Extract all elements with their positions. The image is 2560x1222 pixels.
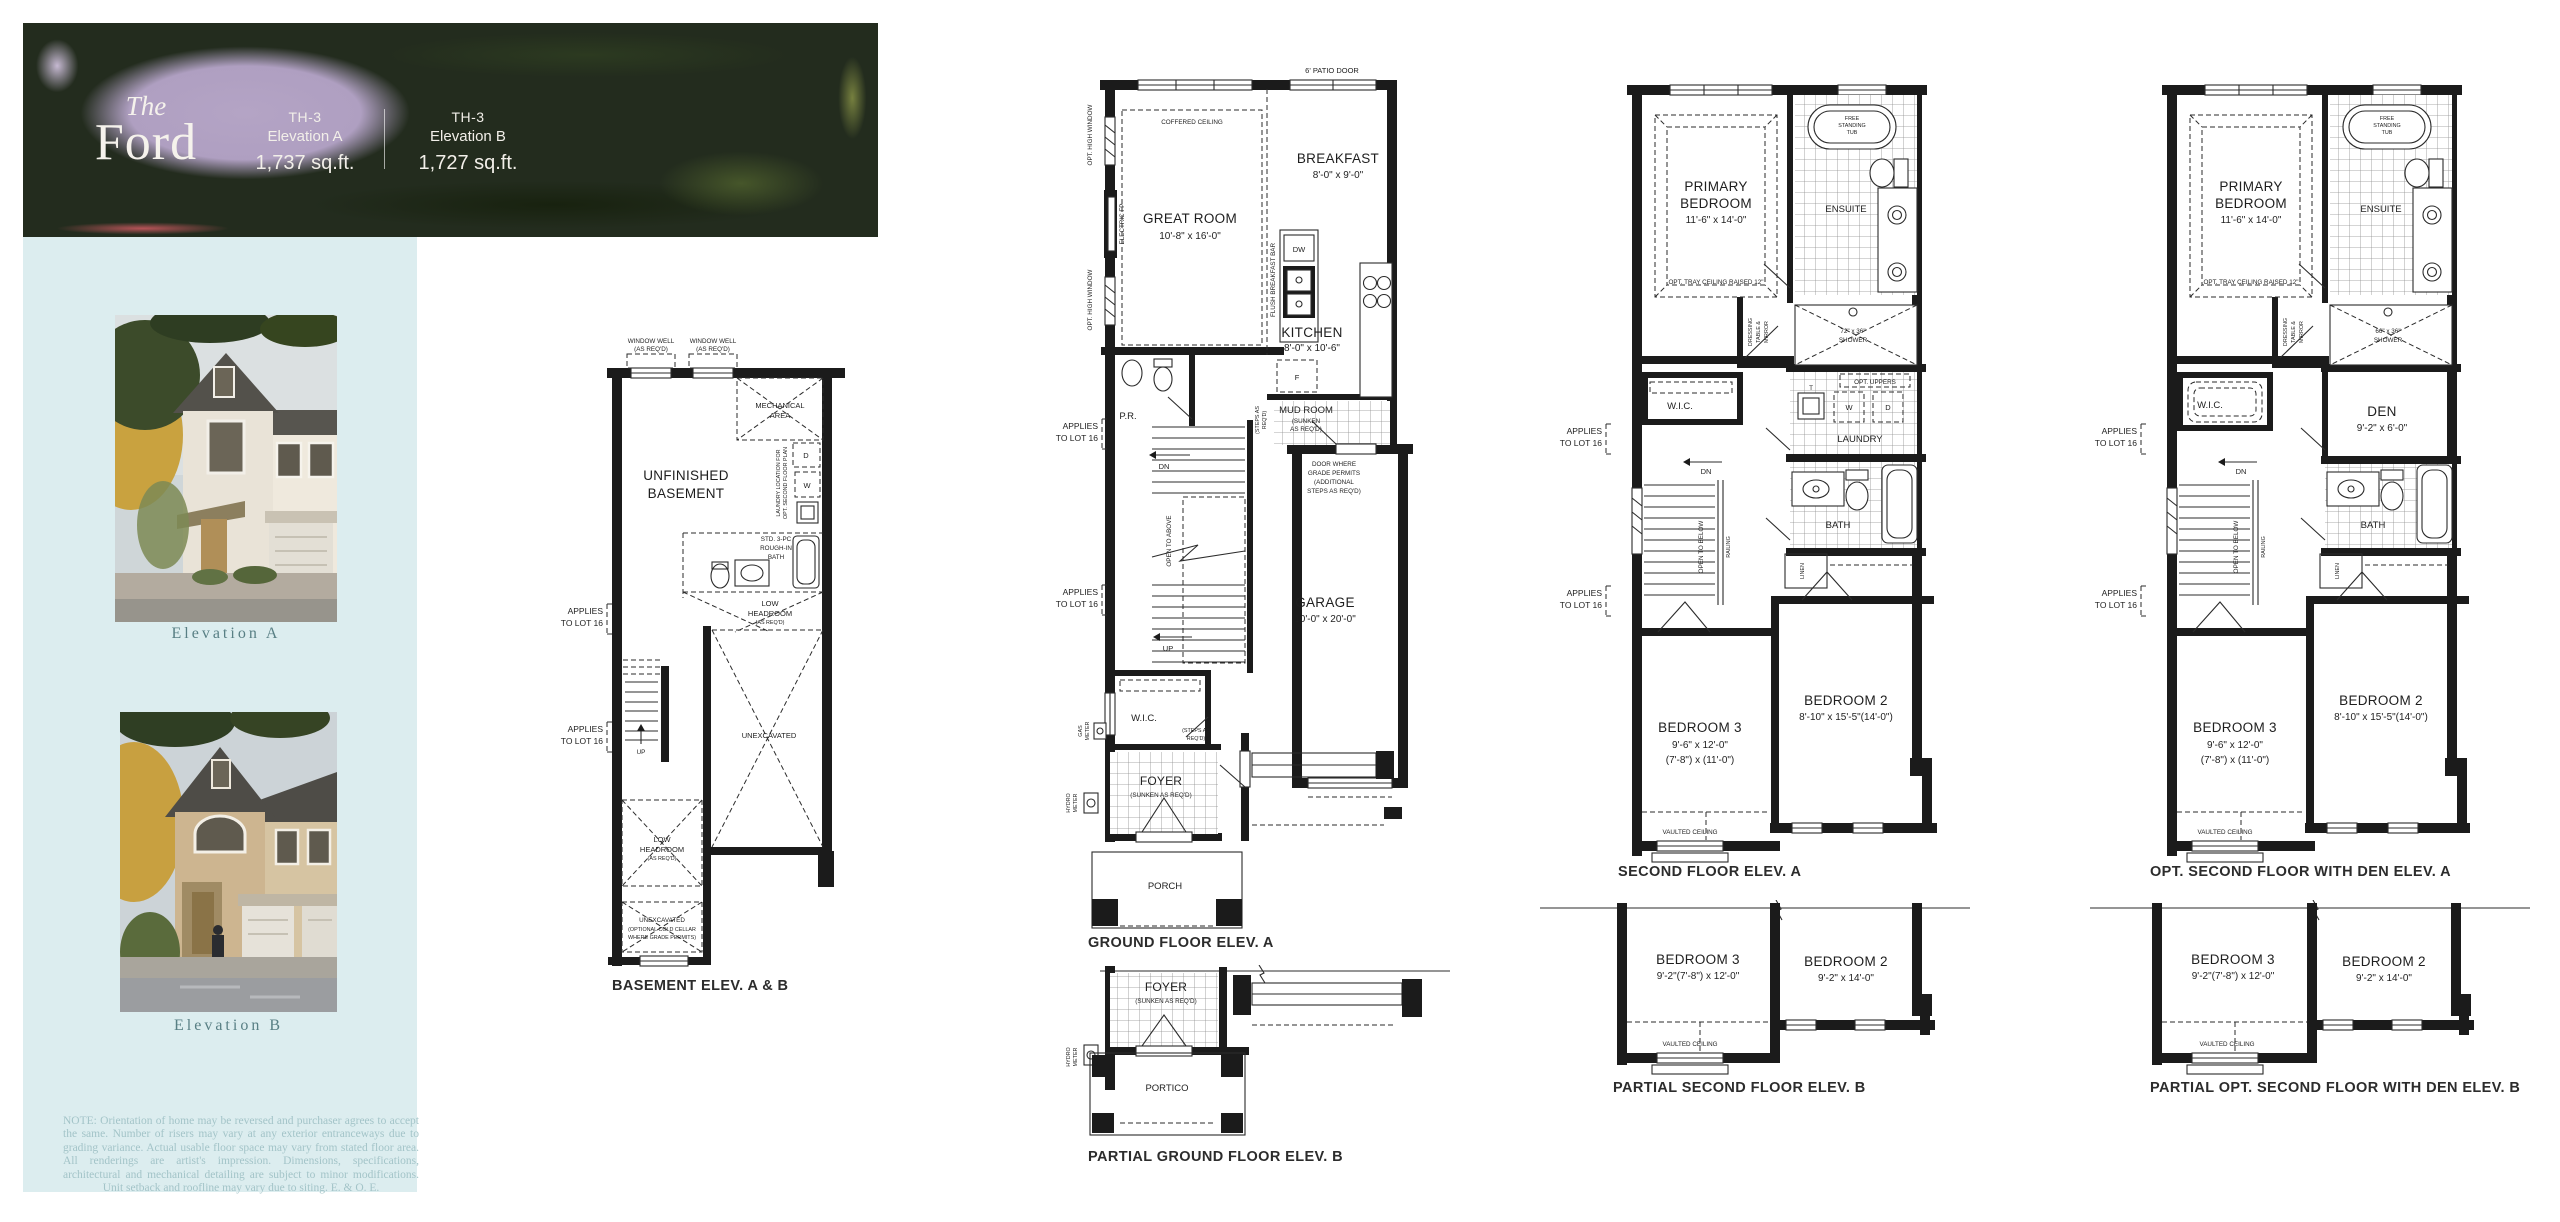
applies-lot16-ground-2: APPLIES TO LOT 16 [1056, 585, 1110, 615]
breakfast-label: BREAKFAST [1297, 151, 1379, 166]
svg-text:11'-6" x 14'-0": 11'-6" x 14'-0" [2221, 215, 2282, 226]
svg-text:APPLIES: APPLIES [1063, 421, 1099, 431]
svg-text:APPLIES: APPLIES [1567, 588, 1603, 598]
svg-text:APPLIES: APPLIES [568, 724, 604, 734]
basement-walls [612, 373, 840, 961]
gas-meter: GAS METER [1078, 721, 1106, 740]
svg-text:GRADE PERMITS: GRADE PERMITS [1308, 470, 1360, 477]
svg-text:VAULTED CEILING: VAULTED CEILING [2197, 829, 2252, 836]
foyer-steps-note-2: REQ'D) [1187, 736, 1206, 742]
bedroom2: BEDROOM 2 8'-10" x 15'-5"(14'-0") [1799, 693, 1893, 723]
model-a: TH-3 [225, 109, 385, 125]
svg-text:RAILING: RAILING [1726, 536, 1732, 558]
svg-text:8'-10" x 15'-5"(14'-0"): 8'-10" x 15'-5"(14'-0") [2334, 712, 2428, 723]
svg-text:(7'-8") x (11'-0"): (7'-8") x (11'-0") [1666, 755, 1735, 766]
applies-lot16-second-2: APPLIES TO LOT 16 [1560, 586, 1614, 616]
svg-text:STD. 3-PC: STD. 3-PC [761, 536, 792, 543]
second-floor-plan: PRIMARY BEDROOM 11'-6" x 14'-0" OPT. TRA… [1540, 60, 1970, 890]
svg-text:VAULTED CEILING: VAULTED CEILING [1662, 829, 1717, 836]
svg-text:UNEXCAVATED: UNEXCAVATED [639, 917, 685, 924]
applies-lot16-second-1: APPLIES TO LOT 16 [1560, 424, 1614, 454]
svg-text:APPLIES: APPLIES [568, 606, 604, 616]
opt-second-caption: OPT. SECOND FLOOR WITH DEN ELEV. A [2150, 864, 2451, 880]
svg-text:9'-6" x 12'-0": 9'-6" x 12'-0" [1672, 740, 1728, 751]
pb3-label: BEDROOM 3 [1656, 952, 1740, 967]
shower: 72" x 36" SHOWER [1795, 305, 1917, 365]
svg-text:TO LOT 16: TO LOT 16 [2095, 600, 2137, 610]
porch: PORCH [1092, 852, 1242, 928]
svg-text:UNEXCAVATED: UNEXCAVATED [742, 731, 797, 740]
svg-text:FOYER: FOYER [1145, 980, 1187, 994]
svg-text:(7'-8") x (11'-0"): (7'-8") x (11'-0") [2201, 755, 2270, 766]
pb2-dims: 9'-2" x 14'-0" [1818, 973, 1874, 984]
svg-text:AS REQ'D): AS REQ'D) [1290, 426, 1322, 433]
bedroom3: BEDROOM 3 9'-6" x 12'-0" (7'-8") x (11'-… [1642, 720, 1770, 840]
svg-text:DN: DN [2236, 467, 2247, 476]
svg-text:W: W [1845, 403, 1853, 412]
svg-text:APPLIES: APPLIES [2102, 426, 2138, 436]
svg-text:GARAGE: GARAGE [1295, 595, 1355, 610]
pb2-label: BEDROOM 2 [1804, 954, 1888, 969]
svg-text:METER: METER [1085, 721, 1091, 740]
partial-second-caption: PARTIAL SECOND FLOOR ELEV. B [1613, 1080, 1866, 1096]
partial-vaulted: VAULTED CEILING [1627, 1022, 1770, 1052]
svg-text:WINDOW WELL: WINDOW WELL [628, 338, 675, 345]
svg-text:DN: DN [1701, 467, 1712, 476]
svg-text:TO LOT 16: TO LOT 16 [1560, 600, 1602, 610]
svg-text:STEPS AS REQ'D): STEPS AS REQ'D) [1307, 488, 1361, 495]
svg-text:TO LOT 16: TO LOT 16 [1056, 433, 1098, 443]
opt-ensuite: FREE STANDING TUB ENSUITE [2299, 95, 2452, 295]
svg-text:HEADROOM: HEADROOM [640, 845, 684, 854]
svg-text:(ADDITIONAL: (ADDITIONAL [1314, 479, 1354, 486]
opt-high-window-1: OPT. HIGH WINDOW [1087, 105, 1094, 166]
spec-divider [384, 109, 385, 169]
svg-text:GAS: GAS [1078, 725, 1084, 737]
svg-text:DOOR WHERE: DOOR WHERE [1312, 461, 1356, 468]
opt-shower: 66" x 36" SHOWER [2330, 305, 2452, 365]
svg-text:SHOWER: SHOWER [1839, 337, 1868, 344]
opt-bath: BATH [2301, 464, 2452, 548]
svg-text:(OPTIONAL COLD CELLAR: (OPTIONAL COLD CELLAR [628, 927, 696, 933]
svg-text:(SUNKEN AS REQ'D): (SUNKEN AS REQ'D) [1130, 792, 1191, 799]
applies-lot16-opt-1: APPLIES TO LOT 16 [2095, 424, 2149, 454]
svg-text:PORTICO: PORTICO [1145, 1083, 1188, 1094]
pob2-label: BEDROOM 2 [2342, 954, 2426, 969]
second-wic: W.I.C. [1650, 382, 1732, 412]
rough-in-bath: STD. 3-PC ROUGH-IN BATH [683, 533, 823, 598]
partial-second-plan: BEDROOM 3 9'-2"(7'-8") x 12'-0" BEDROOM … [1540, 900, 1970, 1100]
kitchen-fixtures: DW FLUSH BREAKFAST BAR [1270, 230, 1392, 397]
garage: DOOR WHERE GRADE PERMITS (ADDITIONAL STE… [1294, 421, 1392, 797]
svg-text:ROUGH-IN: ROUGH-IN [760, 545, 792, 552]
svg-text:FOYER: FOYER [1140, 774, 1182, 788]
svg-text:TO LOT 16: TO LOT 16 [1056, 599, 1098, 609]
svg-text:(STEPS AS: (STEPS AS [1255, 406, 1261, 434]
partial-opt-caption: PARTIAL OPT. SECOND FLOOR WITH DEN ELEV.… [2150, 1080, 2520, 1096]
svg-text:9'-6" x 12'-0": 9'-6" x 12'-0" [2207, 740, 2263, 751]
svg-text:MECHANICAL: MECHANICAL [755, 401, 804, 410]
page-title: The Ford [71, 93, 221, 166]
elevation-a-name: Elevation A [225, 128, 385, 145]
svg-text:(AS REQ'D): (AS REQ'D) [696, 346, 730, 353]
svg-text:VAULTED CEILING: VAULTED CEILING [2199, 1041, 2254, 1048]
ensuite: FREE STANDING TUB ENSUITE [1764, 95, 1917, 295]
second-bath: BATH [1766, 462, 1917, 548]
svg-text:SHOWER: SHOWER [2374, 337, 2403, 344]
partial-opt-plan: BEDROOM 3 9'-2"(7'-8") x 12'-0" BEDROOM … [2090, 900, 2530, 1100]
elevation-b-caption: Elevation B [120, 1017, 337, 1035]
svg-text:DRESSING: DRESSING [2283, 318, 2289, 346]
unfinished-basement-label: UNFINISHED [643, 468, 729, 483]
svg-text:OPT. TRAY CEILING RAISED 12": OPT. TRAY CEILING RAISED 12" [1669, 279, 1764, 286]
svg-text:RAILING: RAILING [2261, 536, 2267, 558]
unit-spec-a: TH-3 Elevation A 1,737 sq.ft. [225, 109, 385, 175]
svg-text:72" x 36": 72" x 36" [1840, 328, 1865, 335]
svg-text:APPLIES: APPLIES [1063, 587, 1099, 597]
opt-second-floor-plan: PRIMARY BEDROOM 11'-6" x 14'-0" OPT. TRA… [2030, 60, 2470, 890]
svg-text:MIRROR: MIRROR [1764, 321, 1770, 343]
svg-text:LAUNDRY LOCATION FOR: LAUNDRY LOCATION FOR [776, 449, 782, 516]
second-stairs: DN OPEN TO BELOW RAILING [1644, 458, 1732, 605]
svg-text:OPEN TO BELOW: OPEN TO BELOW [2233, 521, 2240, 574]
svg-text:DN: DN [1159, 462, 1170, 471]
svg-text:APPLIES: APPLIES [1567, 426, 1603, 436]
great-room-label: GREAT ROOM [1143, 211, 1237, 226]
portico: PORTICO [1090, 1053, 1245, 1135]
svg-text:66" x 36": 66" x 36" [2375, 328, 2400, 335]
svg-text:UP: UP [637, 749, 646, 756]
svg-text:PORCH: PORCH [1148, 881, 1182, 892]
svg-text:OPEN TO ABOVE: OPEN TO ABOVE [1166, 515, 1173, 566]
dressing-table: DRESSING TABLE & MIRROR [1748, 318, 1770, 346]
svg-text:MIRROR: MIRROR [2299, 321, 2305, 343]
svg-text:(AS REQ'D): (AS REQ'D) [756, 620, 785, 626]
foyer: FOYER (SUNKEN AS REQ'D) [1110, 752, 1218, 842]
svg-text:P.R.: P.R. [1119, 411, 1136, 422]
svg-text:10'-0" x 20'-0": 10'-0" x 20'-0" [1294, 614, 1356, 625]
svg-text:OPT. UPPERS: OPT. UPPERS [1854, 379, 1896, 386]
area-a: 1,737 sq.ft. [225, 152, 385, 175]
svg-text:TUB: TUB [2382, 130, 2393, 136]
svg-text:STANDING: STANDING [1838, 123, 1865, 129]
opt-dressing-table: DRESSING TABLE & MIRROR [2283, 318, 2305, 346]
svg-text:LINEN: LINEN [1800, 563, 1806, 579]
svg-text:OPEN TO BELOW: OPEN TO BELOW [1698, 521, 1705, 574]
svg-text:AREA: AREA [770, 411, 790, 420]
applies-lot16-ground-1: APPLIES TO LOT 16 [1056, 419, 1110, 449]
partial-ground-plan: FOYER (SUNKEN AS REQ'D) HYDRO METER PORT… [1040, 965, 1450, 1180]
svg-text:TO LOT 16: TO LOT 16 [561, 736, 603, 746]
svg-text:LAUNDRY: LAUNDRY [1837, 434, 1883, 445]
svg-text:UP: UP [1163, 644, 1173, 653]
elevation-a-photo [115, 315, 337, 622]
unit-spec-b: TH-3 Elevation B 1,727 sq.ft. [388, 109, 548, 175]
partial-side-deck [1233, 975, 1422, 1025]
svg-text:FREE: FREE [1845, 116, 1860, 122]
svg-text:W: W [803, 481, 811, 490]
svg-text:APPLIES: APPLIES [2102, 588, 2138, 598]
svg-text:TO LOT 16: TO LOT 16 [2095, 438, 2137, 448]
svg-text:F: F [1295, 373, 1300, 382]
low-headroom-lower: LOW HEADROOM (AS REQ'D) [622, 800, 702, 886]
svg-text:WINDOW WELL: WINDOW WELL [690, 338, 737, 345]
laundry: OPT. UPPERS T W D LAUNDRY [1766, 372, 1917, 454]
title-name: Ford [71, 120, 221, 166]
svg-text:BATH: BATH [768, 554, 785, 561]
svg-text:DEN: DEN [2367, 404, 2396, 419]
sidebar: Elevation A Elevation B NOTE: Orientatio… [23, 237, 417, 1192]
cold-cellar: UNEXCAVATED (OPTIONAL COLD CELLAR WHERE … [622, 902, 702, 966]
svg-text:WHERE GRADE PERMITS): WHERE GRADE PERMITS) [628, 935, 696, 941]
svg-text:BEDROOM 3: BEDROOM 3 [2193, 720, 2277, 735]
svg-text:FREE: FREE [2380, 116, 2395, 122]
svg-text:MUD ROOM: MUD ROOM [1279, 405, 1333, 416]
svg-text:D: D [803, 451, 809, 460]
pob2-dims: 9'-2" x 14'-0" [2356, 973, 2412, 984]
svg-text:COFFERED CEILING: COFFERED CEILING [1161, 119, 1223, 126]
svg-text:LINEN: LINEN [2335, 563, 2341, 579]
svg-text:TABLE &: TABLE & [1756, 321, 1762, 343]
svg-text:BATH: BATH [1826, 520, 1851, 531]
svg-text:REQ'D): REQ'D) [1262, 411, 1268, 430]
svg-text:8'-10" x 15'-5"(14'-0"): 8'-10" x 15'-5"(14'-0") [1799, 712, 1893, 723]
basement-caption: BASEMENT ELEV. A & B [612, 978, 788, 994]
svg-text:TABLE &: TABLE & [2291, 321, 2297, 343]
elevation-a-caption: Elevation A [115, 625, 337, 643]
svg-text:ENSUITE: ENSUITE [2360, 204, 2401, 215]
ground-caption: GROUND FLOOR ELEV. A [1088, 935, 1274, 951]
svg-text:BEDROOM 2: BEDROOM 2 [1804, 693, 1888, 708]
svg-text:LOW: LOW [761, 599, 779, 608]
electric-fireplace: ELECTRIC FP [1104, 190, 1126, 258]
partial-foyer: FOYER (SUNKEN AS REQ'D) [1110, 973, 1218, 1056]
svg-text:BEDROOM: BEDROOM [1680, 196, 1752, 211]
partial-opt-walls [2157, 908, 2471, 1060]
ground-stairs: DN OPEN TO ABOVE UP [1149, 427, 1245, 663]
svg-text:TUB: TUB [1847, 130, 1858, 136]
svg-text:(AS REQ'D): (AS REQ'D) [648, 856, 677, 862]
opt-bedroom3: BEDROOM 3 9'-6" x 12'-0" (7'-8") x (11'-… [2177, 720, 2305, 840]
opt-linen-closet: LINEN [2320, 554, 2362, 588]
unfinished-basement-label2: BASEMENT [648, 486, 725, 501]
svg-text:DRESSING: DRESSING [1748, 318, 1754, 346]
elevation-b-photo [120, 712, 337, 1012]
svg-text:11'-6" x 14'-0": 11'-6" x 14'-0" [1686, 215, 1747, 226]
svg-text:D: D [1885, 403, 1891, 412]
svg-text:BEDROOM: BEDROOM [2215, 196, 2287, 211]
svg-text:BEDROOM 3: BEDROOM 3 [1658, 720, 1742, 735]
opt-wic: W.I.C. [2188, 382, 2262, 422]
basement-stairs: UP [623, 660, 665, 758]
applies-lot16-basement-1: APPLIES TO LOT 16 [561, 604, 615, 634]
pb3-dims: 9'-2"(7'-8") x 12'-0" [1657, 971, 1740, 982]
svg-text:METER: METER [1073, 1047, 1079, 1066]
basement-plan: WINDOW WELL (AS REQ'D) WINDOW WELL (AS R… [555, 330, 865, 1000]
svg-text:T: T [1809, 385, 1813, 392]
breakfast-dims: 8'-0" x 9'-0" [1313, 170, 1364, 181]
svg-text:TO LOT 16: TO LOT 16 [1560, 438, 1602, 448]
header-banner: The Ford TH-3 Elevation A 1,737 sq.ft. T… [23, 23, 878, 237]
partial-ground-caption: PARTIAL GROUND FLOOR ELEV. B [1088, 1149, 1343, 1165]
svg-text:FLUSH BREAKFAST BAR: FLUSH BREAKFAST BAR [1270, 243, 1277, 318]
unexcavated-garage: UNEXCAVATED [712, 630, 823, 847]
svg-text:W.I.C.: W.I.C. [2197, 400, 2223, 411]
elevation-b-name: Elevation B [388, 128, 548, 145]
svg-text:VAULTED CEILING: VAULTED CEILING [1662, 1041, 1717, 1048]
pob3-dims: 9'-2"(7'-8") x 12'-0" [2192, 971, 2275, 982]
basement-laundry-location: D W T LAUNDRY LOCATION FOR OPT. SECOND F… [776, 443, 827, 523]
model-b: TH-3 [388, 109, 548, 125]
hydro-meter: HYDRO METER [1066, 793, 1098, 813]
ground-floor-plan: 6' PATIO DOOR OPT. HIGH WINDOW OPT. HIGH… [1040, 25, 1450, 975]
svg-text:PRIMARY: PRIMARY [1684, 179, 1747, 194]
pob3-label: BEDROOM 3 [2191, 952, 2275, 967]
svg-text:BEDROOM 2: BEDROOM 2 [2339, 693, 2423, 708]
foyer-steps-note-1: (STEPS AS [1182, 728, 1210, 734]
partial-second-walls [1622, 908, 1932, 1060]
svg-text:STANDING: STANDING [2373, 123, 2400, 129]
area-b: 1,727 sq.ft. [388, 152, 548, 175]
opt-stairs: DN OPEN TO BELOW RAILING [2179, 458, 2267, 605]
break-symbol [1259, 965, 1265, 983]
svg-text:HYDRO: HYDRO [1066, 1047, 1072, 1066]
svg-text:OPT. TRAY CEILING RAISED 12": OPT. TRAY CEILING RAISED 12" [2204, 279, 2299, 286]
svg-text:9'-2" x 6'-0": 9'-2" x 6'-0" [2357, 423, 2408, 434]
svg-text:TO LOT 16: TO LOT 16 [561, 618, 603, 628]
opt-bedroom2: BEDROOM 2 8'-10" x 15'-5"(14'-0") [2334, 693, 2428, 723]
partial-opt-vaulted: VAULTED CEILING [2162, 1022, 2307, 1052]
second-caption: SECOND FLOOR ELEV. A [1618, 864, 1801, 880]
svg-text:OPT. SECOND FLOOR PLAN: OPT. SECOND FLOOR PLAN [783, 447, 789, 519]
svg-text:W.I.C.: W.I.C. [1131, 713, 1157, 724]
svg-text:PRIMARY: PRIMARY [2219, 179, 2282, 194]
powder-room: P.R. [1119, 359, 1192, 422]
patio-door-label: 6' PATIO DOOR [1305, 66, 1359, 75]
svg-text:W.I.C.: W.I.C. [1667, 401, 1693, 412]
svg-text:(AS REQ'D): (AS REQ'D) [634, 346, 668, 353]
mechanical-area: MECHANICAL AREA [737, 378, 823, 440]
svg-text:LOW: LOW [653, 835, 671, 844]
great-room-dims: 10'-8" x 16'-0" [1159, 231, 1221, 242]
svg-text:BATH: BATH [2361, 520, 2386, 531]
svg-text:DW: DW [1293, 245, 1306, 254]
svg-text:ENSUITE: ENSUITE [1825, 204, 1866, 215]
disclaimer-note: NOTE: Orientation of home may be reverse… [63, 1115, 419, 1196]
svg-text:HEADROOM: HEADROOM [748, 609, 792, 618]
den: DEN 9'-2" x 6'-0" [2301, 404, 2408, 450]
svg-text:(SUNKEN: (SUNKEN [1292, 418, 1321, 425]
opt-high-window-2: OPT. HIGH WINDOW [1087, 270, 1094, 331]
linen-closet: LINEN [1785, 554, 1827, 588]
ground-walls [1105, 85, 1408, 837]
svg-text:METER: METER [1073, 793, 1079, 812]
svg-text:(SUNKEN AS REQ'D): (SUNKEN AS REQ'D) [1135, 998, 1196, 1005]
applies-lot16-opt-2: APPLIES TO LOT 16 [2095, 586, 2149, 616]
kitchen-dims: 8'-0" x 10'-6" [1284, 343, 1340, 354]
applies-lot16-basement-2: APPLIES TO LOT 16 [561, 722, 615, 752]
coffered-ceiling: COFFERED CEILING [1122, 110, 1262, 345]
kitchen-label: KITCHEN [1281, 325, 1342, 340]
svg-text:HYDRO: HYDRO [1066, 793, 1072, 812]
